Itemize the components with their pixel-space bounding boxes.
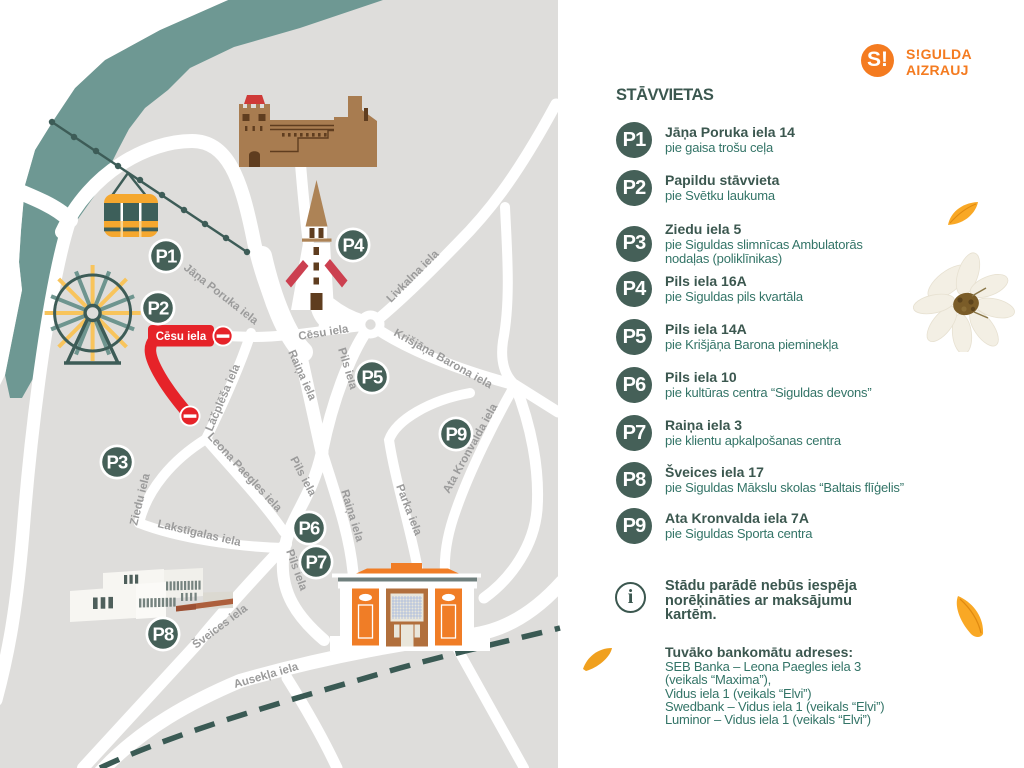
svg-text:P9: P9 bbox=[445, 424, 467, 445]
svg-text:P8: P8 bbox=[152, 624, 174, 645]
svg-text:P5: P5 bbox=[361, 367, 383, 388]
svg-text:P3: P3 bbox=[106, 452, 128, 473]
svg-text:P7: P7 bbox=[305, 552, 327, 573]
svg-text:Cēsu iela: Cēsu iela bbox=[156, 331, 207, 343]
svg-text:P4: P4 bbox=[342, 235, 365, 256]
svg-text:P1: P1 bbox=[155, 246, 177, 267]
svg-text:P6: P6 bbox=[298, 518, 320, 539]
svg-text:P2: P2 bbox=[147, 298, 169, 319]
